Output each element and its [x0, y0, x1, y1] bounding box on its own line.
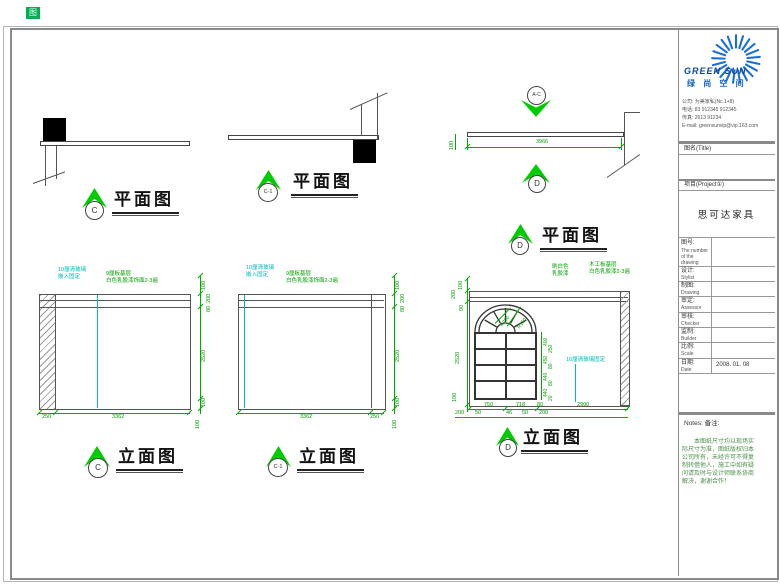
- drawing-sheet: 图 C 平面图 C-1 平面图 A-C 100 3966: [0, 0, 780, 585]
- notes-line: 公司所有，未经许可不得复: [682, 454, 754, 462]
- notes-line: 问请及时与设计师联系协商: [682, 470, 754, 478]
- direction-marker-circle: D: [528, 175, 546, 193]
- dim-label: 100: [196, 420, 202, 429]
- dim-label: 100: [396, 398, 402, 407]
- divider-bar: [679, 141, 775, 144]
- view-title: 平面图: [540, 221, 607, 250]
- company-line: 传真: 2613 91234: [682, 115, 721, 121]
- dim-label: 3966: [536, 140, 548, 146]
- annotation-cyan: 10厘清玻璃 嵌入固定: [246, 265, 274, 278]
- wall-line: [377, 93, 378, 140]
- row-line: [678, 266, 775, 267]
- dim-label: 200: [539, 411, 548, 417]
- row-line: [678, 358, 775, 359]
- annotation-line: 10厘清玻璃: [246, 265, 274, 272]
- dim-label: 80: [549, 380, 554, 386]
- notes-label: Notes: 备注:: [684, 420, 719, 427]
- annotation-green: 9厘板基层 白色乳胶漆饰面2-3遍: [106, 271, 158, 284]
- dim-label: 100: [202, 398, 208, 407]
- window-rail: [476, 364, 535, 366]
- row-sub: Assessor: [681, 305, 702, 311]
- date-value: 2008. 01. 08: [716, 362, 749, 369]
- annotation-line: 白色乳胶漆2-3遍: [589, 269, 630, 276]
- view-marker-circle: C-1: [258, 183, 278, 202]
- annotation-green: 9厘板基层 白色乳胶漆饰面2-3遍: [286, 271, 338, 284]
- row-sub: Scale: [681, 351, 694, 357]
- glass-leader: [575, 364, 576, 402]
- dim-label: 80: [207, 306, 213, 312]
- row-label: 图号:: [681, 240, 695, 247]
- dim-label: 100: [453, 393, 459, 402]
- window-mullion: [505, 334, 507, 398]
- dim-label: 250: [370, 415, 379, 421]
- dim-label: 2520: [202, 350, 208, 362]
- row-line: [678, 190, 775, 191]
- dim-label: 50: [522, 411, 528, 417]
- wall-line: [45, 146, 46, 186]
- glass-line: [97, 295, 98, 408]
- company-line: 电话: 83 912345 912345: [682, 107, 737, 113]
- divider-bar: [679, 179, 775, 181]
- dim-label: 3362: [300, 415, 312, 421]
- row-label: 审定:: [681, 298, 695, 305]
- window-grid: [474, 332, 537, 400]
- brand-name: GREEN SUN: [684, 66, 747, 76]
- row-label: 监制:: [681, 329, 695, 336]
- view-title: 立面图: [116, 442, 183, 471]
- brand-name-cn: 绿 尚 空 间: [687, 78, 747, 89]
- dim-label: 100: [396, 281, 402, 290]
- row-label: 制图:: [681, 283, 695, 290]
- dim-label: 750: [484, 403, 493, 409]
- dim-label: 200: [401, 294, 407, 303]
- row-line: [678, 296, 775, 297]
- corner-watermark: 图: [26, 7, 40, 19]
- titleblock-divider: [678, 28, 679, 576]
- annotation-line: 嵌入固定: [58, 274, 86, 281]
- view-marker-circle: C: [88, 458, 108, 478]
- row-label: 日期:: [681, 360, 695, 367]
- view-title: 平面图: [291, 167, 358, 196]
- annotation-cyan: 10厘清玻璃固定: [566, 357, 605, 364]
- divider-bar: [679, 412, 775, 415]
- company-line: E-mail: greensunvip@vip.163.com: [682, 123, 758, 129]
- view-marker-circle: D: [499, 439, 517, 457]
- annotation-line: 白色乳胶漆饰面2-3遍: [106, 278, 158, 285]
- wall-line: [361, 104, 362, 136]
- cell-divider: [711, 237, 712, 373]
- dim-chain: [467, 278, 468, 412]
- project-label: 项目(Project①): [684, 182, 724, 189]
- wall-block: [353, 140, 376, 163]
- beam-line: [469, 297, 628, 298]
- dim-label: 2900: [577, 403, 589, 409]
- dim-chain: [394, 276, 395, 414]
- hatched-column: [39, 294, 56, 410]
- dim-label: 2520: [396, 350, 402, 362]
- window-rail: [476, 380, 535, 382]
- row-label: 审核:: [681, 314, 695, 321]
- project-name: 思可达家具: [678, 207, 775, 221]
- dim-label: 46: [506, 411, 512, 417]
- dim-chain: [200, 276, 201, 414]
- annotation-line: 乳胶漆: [552, 271, 569, 278]
- dim-line: [469, 409, 628, 410]
- view-title: 立面图: [521, 423, 588, 452]
- dim-label: 200: [452, 290, 458, 299]
- elevation-body: [55, 294, 191, 410]
- wall-line: [624, 112, 640, 113]
- dim-label: 250: [42, 415, 51, 421]
- dim-label: 200: [455, 411, 464, 417]
- row-line: [678, 327, 775, 328]
- dim-label: 3362: [112, 415, 124, 421]
- wall-block: [43, 118, 66, 141]
- view-marker-circle: C: [85, 201, 104, 220]
- annotation-cyan: 10厘清玻璃 嵌入固定: [58, 267, 86, 280]
- view-title: 平面图: [112, 185, 179, 214]
- beam-line: [39, 307, 190, 308]
- beam-line: [238, 300, 384, 301]
- dim-label: 100: [450, 141, 456, 150]
- row-line: [678, 281, 775, 282]
- annotation-green: 木工板基层 白色乳胶漆2-3遍: [589, 262, 630, 275]
- annotation-line: 刷白色: [552, 264, 569, 271]
- wall-line: [624, 112, 625, 165]
- dim-label: 100: [393, 420, 399, 429]
- notes-line: 本图纸尺寸均以现场实: [682, 438, 754, 446]
- view-marker-circle: C-1: [268, 458, 288, 477]
- annotation-green: 刷白色 乳胶漆: [552, 264, 569, 277]
- row-line: [678, 312, 775, 313]
- dim-label: 100: [202, 281, 208, 290]
- row-label: 比例:: [681, 344, 695, 351]
- row-line: [678, 237, 775, 238]
- dim-label: 80: [537, 403, 543, 409]
- elevation-body: [238, 294, 386, 410]
- notes-line: 际尺寸为准，图纸版权归本: [682, 446, 754, 454]
- view-marker-circle: D: [511, 237, 529, 255]
- column-line: [371, 294, 372, 408]
- dim-label: 50: [475, 411, 481, 417]
- beam-line: [39, 300, 190, 301]
- title-label: 图名(Title): [684, 146, 711, 153]
- notes-text: 本图纸尺寸均以现场实 际尺寸为准，图纸版权归本 公司所有，未经许可不得复 制转借…: [682, 438, 754, 486]
- counter-top-plan: [467, 132, 624, 137]
- row-label: 设计:: [681, 268, 695, 275]
- dim-label: 718: [516, 403, 525, 409]
- row-line: [678, 342, 775, 343]
- dim-label: 20: [549, 395, 554, 401]
- dim-label: 100: [459, 281, 465, 290]
- section-marker-circle: A-C: [527, 86, 546, 105]
- beam-line: [469, 301, 628, 302]
- dim-label: 250: [549, 345, 554, 353]
- dim-label: 80: [549, 363, 554, 369]
- beam-line: [238, 307, 384, 308]
- dim-label: 200: [207, 294, 213, 303]
- glass-line: [244, 295, 245, 408]
- dim-chain: [541, 332, 542, 400]
- notes-line: 制转借他人，施工中如有疑: [682, 462, 754, 470]
- hatched-column: [620, 291, 630, 406]
- annotation-line: 10厘清玻璃: [58, 267, 86, 274]
- dim-label: 2520: [456, 352, 462, 364]
- row-line: [678, 373, 775, 374]
- window-rail: [476, 348, 535, 350]
- dim-line: [455, 417, 628, 418]
- notes-line: 解决，谢谢合作！: [682, 478, 754, 486]
- row-line: [678, 154, 775, 155]
- annotation-line: 白色乳胶漆饰面2-3遍: [286, 278, 338, 285]
- dim-label: 80: [401, 306, 407, 312]
- counter-top-plan: [40, 141, 190, 146]
- annotation-line: 嵌入固定: [246, 272, 274, 279]
- dim-label: 90: [460, 305, 466, 311]
- view-title: 立面图: [297, 442, 364, 471]
- dim-line: [467, 147, 622, 148]
- company-line: 公司: 为美家私(Nc.1+8): [682, 99, 734, 105]
